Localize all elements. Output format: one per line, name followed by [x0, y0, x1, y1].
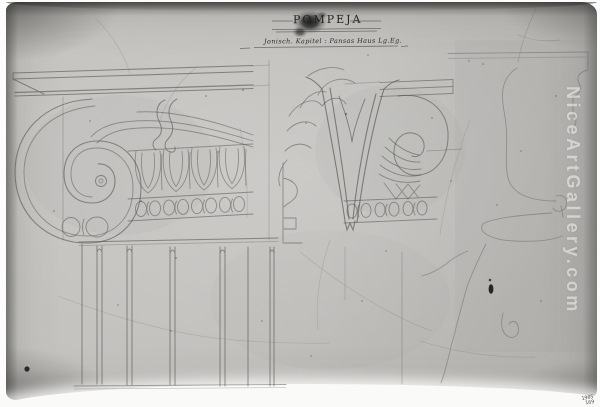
- artwork-title: POMPEJA: [293, 13, 363, 26]
- artwork-subtitle: Jonisch. Kapitel : Pansas Haus Lg.Eg.: [264, 37, 402, 46]
- pencil-drawing: [0, 0, 600, 407]
- watermark-text: NiceArtGallery.com: [562, 86, 583, 366]
- punch-dot: [24, 366, 29, 371]
- catalog-number: 1905 169: [581, 395, 594, 407]
- artwork-photo-scan: POMPEJA Jonisch. Kapitel : Pansas Haus L…: [0, 0, 600, 407]
